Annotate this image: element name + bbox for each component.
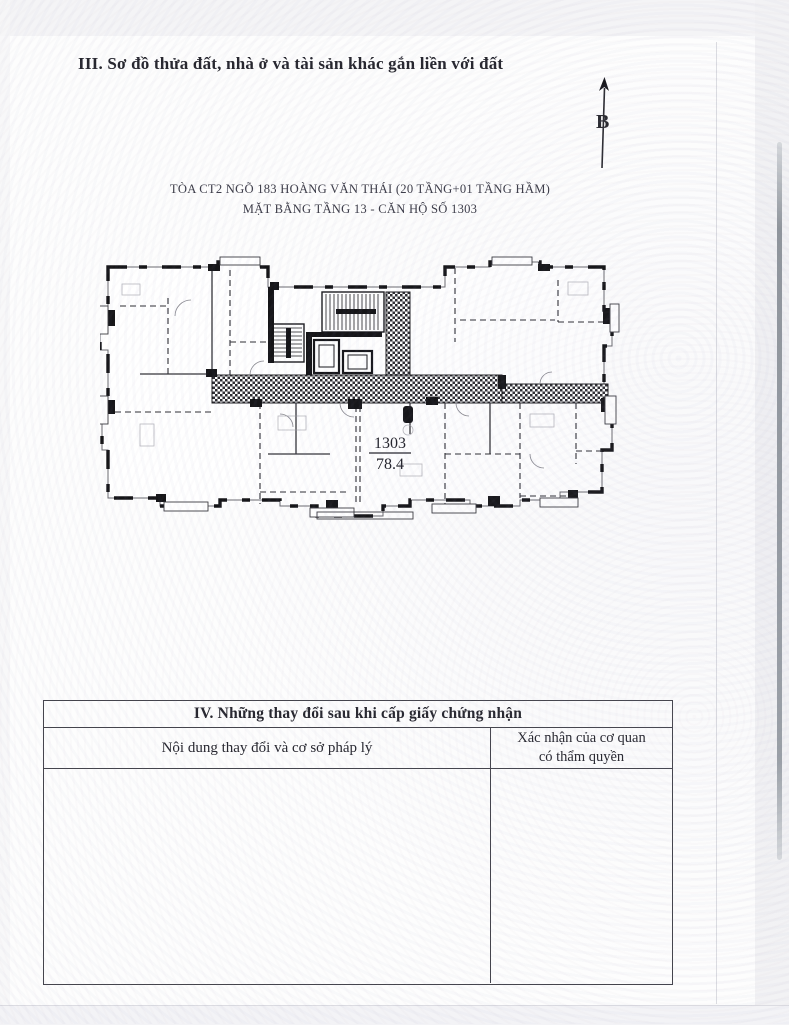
apartment-area-label: 78.4 bbox=[376, 456, 404, 473]
section4-table: IV. Những thay đổi sau khi cấp giấy chứn… bbox=[43, 700, 673, 985]
scan-top-shadow bbox=[0, 0, 789, 36]
building-title: TÒA CT2 NGÕ 183 HOÀNG VĂN THÁI (20 TẦNG+… bbox=[100, 182, 620, 197]
north-compass: B bbox=[586, 76, 626, 172]
col-header-content: Nội dung thay đổi và cơ sở pháp lý bbox=[44, 728, 491, 768]
paper-right-edge-line bbox=[716, 42, 717, 1004]
section3-title: III. Sơ đồ thửa đất, nhà ở và tài sản kh… bbox=[78, 54, 638, 74]
empty-cell-confirmation bbox=[491, 769, 672, 983]
col-header-confirmation-line1: Xác nhận của cơ quan bbox=[517, 729, 645, 748]
staircase-left bbox=[272, 324, 304, 362]
floor-title: MẶT BẰNG TẦNG 13 - CĂN HỘ SỐ 1303 bbox=[100, 202, 620, 217]
col-header-confirmation: Xác nhận của cơ quan có thẩm quyền bbox=[491, 728, 672, 768]
empty-cell-content bbox=[44, 769, 491, 983]
compass-north-label: B bbox=[596, 111, 609, 133]
apartment-number-label: 1303 bbox=[374, 435, 406, 452]
scan-edge-bar bbox=[777, 142, 782, 860]
table-body-row bbox=[44, 769, 672, 983]
floor-plan-drawing: 1303 78.4 bbox=[100, 254, 620, 524]
scan-left-shadow bbox=[0, 0, 10, 1024]
col-header-confirmation-line2: có thẩm quyền bbox=[539, 748, 624, 767]
scan-bottom-edge bbox=[0, 1005, 789, 1025]
table-header-row: Nội dung thay đổi và cơ sở pháp lý Xác n… bbox=[44, 728, 672, 769]
scan-right-margin bbox=[755, 0, 789, 1024]
floor-plan-titles: TÒA CT2 NGÕ 183 HOÀNG VĂN THÁI (20 TẦNG+… bbox=[100, 182, 620, 217]
section4-title: IV. Những thay đổi sau khi cấp giấy chứn… bbox=[44, 701, 672, 728]
wall-end-block bbox=[403, 406, 413, 423]
staircase-top bbox=[322, 292, 384, 332]
